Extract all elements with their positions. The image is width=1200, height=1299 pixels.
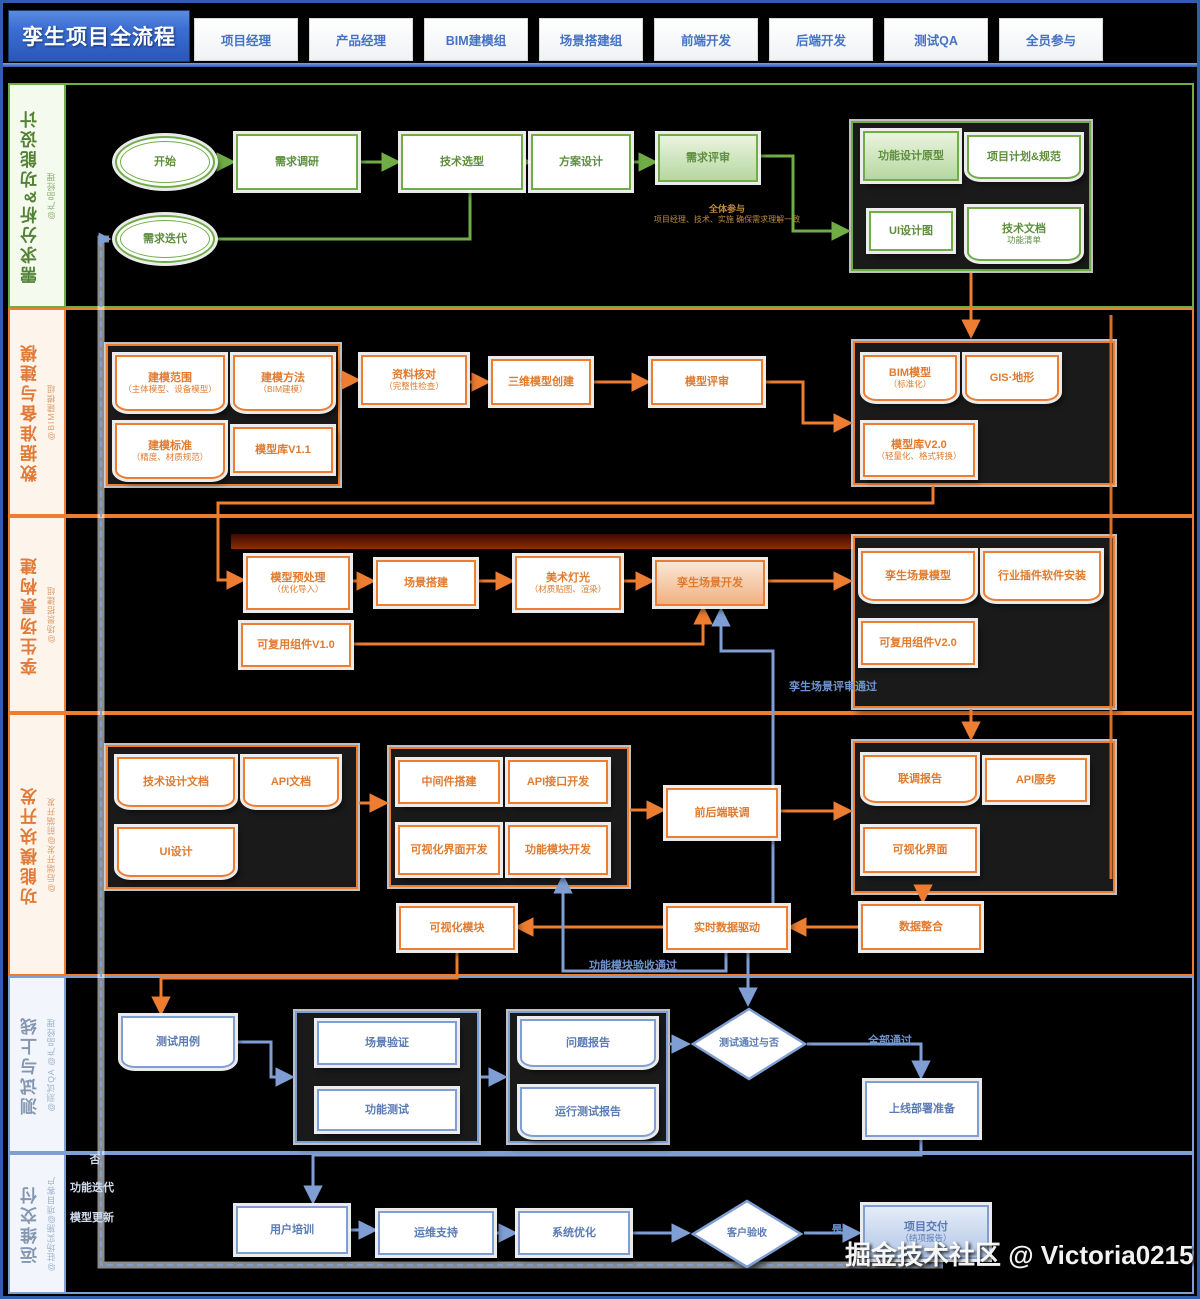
func-proto-node: 功能设计原型 <box>863 131 959 181</box>
lbl-no-label: 否 <box>87 1151 103 1169</box>
func-test-text: 功能测试 <box>365 1104 409 1117</box>
lbl-scene-pass-text: 孪生场景评审通过 <box>789 681 877 694</box>
joint-debug-node: 前后端联调 <box>666 788 778 838</box>
lbl-yes-text: 是 <box>832 1224 843 1237</box>
model-create-text: 三维模型创建 <box>508 376 574 389</box>
run-report-node: 运行测试报告 <box>520 1087 656 1137</box>
data-merge-node: 数据整合 <box>861 904 981 950</box>
comp-v20-node: 可复用组件V2.0 <box>861 621 975 665</box>
plan-spec-node: 项目计划&规范 <box>967 135 1081 179</box>
req-research-node: 需求调研 <box>236 134 358 190</box>
user-training-node: 用户培训 <box>236 1206 348 1254</box>
ops-support-node: 运维支持 <box>378 1211 494 1255</box>
lane-scene-build-label: 孪生场景构建 @场景搭建组 <box>10 518 66 711</box>
gis-text: GIS·地形 <box>990 372 1035 385</box>
tech-doc-subtext: 功能清单 <box>1007 236 1041 246</box>
lbl-model-update-text: 模型更新 <box>70 1212 114 1225</box>
scene-build-node: 场景搭建 <box>376 560 476 606</box>
role-tab-frontend: 前端开发 <box>654 18 758 61</box>
plan-design-text: 方案设计 <box>559 156 603 169</box>
tech-design-node: 技术设计文档 <box>117 757 235 807</box>
middleware-text: 中间件搭建 <box>422 776 477 789</box>
gis-node: GIS·地形 <box>965 355 1059 401</box>
model-review-node: 模型评审 <box>651 359 763 405</box>
debug-report-node: 联调报告 <box>863 755 977 803</box>
api-doc-text: API文档 <box>271 776 311 789</box>
lane-title: 孪生场景构建 <box>18 555 43 675</box>
model-review-text: 模型评审 <box>685 376 729 389</box>
scope-node: 建模范围（主体模型、设备模型） <box>115 355 225 411</box>
plugin-text: 行业插件软件安装 <box>998 570 1086 583</box>
watermark: 掘金技术社区 @ Victoria0215 <box>845 1235 1194 1272</box>
twin-dev-text: 孪生场景开发 <box>677 577 743 590</box>
lane-title: 运维交付 <box>18 1184 43 1264</box>
middleware-node: 中间件搭建 <box>398 760 500 804</box>
lbl-all-pass-text: 全部通过 <box>868 1035 912 1048</box>
lib-v20-text: 模型库V2.0 <box>891 439 947 452</box>
standard-text: 建模标准 <box>148 440 192 453</box>
method-subtext: （BIM建模） <box>258 385 307 395</box>
art-light-node: 美术灯光（材质贴图、渲染） <box>515 556 621 610</box>
lbl-all-pass-label: 全部通过 <box>855 1033 925 1049</box>
twin-dev-node: 孪生场景开发 <box>655 560 765 606</box>
art-light-subtext: （材质贴图、渲染） <box>530 585 607 595</box>
standard-subtext: （精度、材质规范） <box>132 453 209 463</box>
lbl-yes-label: 是 <box>829 1221 845 1239</box>
sys-optimize-node: 系统优化 <box>518 1211 630 1255</box>
header-divider <box>3 63 1197 67</box>
role-tab-scene-team: 场景搭建组 <box>539 18 643 61</box>
lib-v20-node: 模型库V2.0（轻量化、格式转换） <box>863 423 975 477</box>
bim-model-subtext: （标准化） <box>889 380 932 390</box>
role-tab-project-manager: 项目经理 <box>194 18 298 61</box>
api-doc-node: API文档 <box>243 757 339 807</box>
run-report-text: 运行测试报告 <box>555 1106 621 1119</box>
deploy-prep-text: 上线部署准备 <box>889 1103 955 1116</box>
lane-title: 数据准备与建模 <box>18 342 43 482</box>
test-case-node: 测试用例 <box>121 1016 235 1068</box>
twin-project-flowchart: 孪生项目全流程 项目经理 产品经理 BIM建模组 场景搭建组 前端开发 后端开发… <box>0 0 1200 1299</box>
accept-text: 客户验收 <box>727 1228 767 1240</box>
issue-report-node: 问题报告 <box>520 1019 656 1067</box>
review-note-subtext: 项目经理、技术、实施 确保需求理解一致 <box>654 215 800 224</box>
test-case-text: 测试用例 <box>156 1036 200 1049</box>
lbl-no-text: 否 <box>90 1154 101 1167</box>
role-tab-qa: 测试QA <box>884 18 988 61</box>
review-note-node: 全体参与项目经理、技术、实施 确保需求理解一致 <box>651 189 803 239</box>
lane-test-launch-label: 测试与上线 @测试QA @产品经理 <box>10 978 66 1151</box>
lbl-func-iter-text: 功能迭代 <box>70 1182 114 1195</box>
art-light-text: 美术灯光 <box>546 572 590 585</box>
tech-select-text: 技术选型 <box>440 156 484 169</box>
sys-optimize-text: 系统优化 <box>552 1227 596 1240</box>
lib-v20-subtext: （轻量化、格式转换） <box>876 452 961 462</box>
role-tab-product-manager: 产品经理 <box>309 18 413 61</box>
preprocess-subtext: （优化导入） <box>272 585 323 595</box>
viz-ui-text: 可视化界面 <box>893 844 948 857</box>
scene-verify-node: 场景验证 <box>317 1021 457 1065</box>
test-pass-text: 测试通过与否 <box>719 1038 779 1050</box>
lane-module-dev-label: 功能模块开发 @后端开发@前端开发 <box>10 715 66 974</box>
tech-doc-text: 技术文档 <box>1002 223 1046 236</box>
lane-title: 测试与上线 <box>18 1015 43 1115</box>
data-merge-text: 数据整合 <box>899 921 943 934</box>
func-dev-node: 功能模块开发 <box>508 825 608 875</box>
req-review-node: 需求评审 <box>658 134 758 182</box>
twin-model-node: 孪生场景模型 <box>861 551 975 601</box>
api-svc-node: API服务 <box>985 758 1087 802</box>
start-text: 开始 <box>154 156 176 169</box>
api-dev-node: API接口开发 <box>508 760 608 804</box>
issue-report-text: 问题报告 <box>566 1037 610 1050</box>
data-check-node: 资料核对（完整性检查） <box>361 355 467 405</box>
lib-v11-node: 模型库V1.1 <box>233 427 333 473</box>
user-training-text: 用户培训 <box>270 1224 314 1237</box>
ops-support-text: 运维支持 <box>414 1227 458 1240</box>
role-tab-backend: 后端开发 <box>769 18 873 61</box>
tech-doc-node: 技术文档功能清单 <box>967 207 1081 261</box>
comp-v20-text: 可复用组件V2.0 <box>879 637 957 650</box>
plan-design-node: 方案设计 <box>531 134 631 190</box>
lane-title: 功能模块开发 <box>18 785 43 905</box>
page-title: 孪生项目全流程 <box>8 10 190 62</box>
lbl-scene-pass-label: 孪生场景评审通过 <box>778 679 888 695</box>
func-dev-text: 功能模块开发 <box>525 844 591 857</box>
func-test-node: 功能测试 <box>317 1089 457 1131</box>
ui-doc-node: UI设计 <box>117 827 235 877</box>
preprocess-node: 模型预处理（优化导入） <box>246 556 350 610</box>
lib-v11-text: 模型库V1.1 <box>255 444 311 457</box>
lane-owner: @后端开发@前端开发 <box>45 797 57 892</box>
preprocess-text: 模型预处理 <box>271 572 326 585</box>
twin-model-text: 孪生场景模型 <box>885 570 951 583</box>
accept-node: 客户验收 <box>691 1199 803 1269</box>
lane-ops-delivery-label: 运维交付 @驻场实施@项目客户 <box>10 1155 66 1292</box>
lane-owner: @驻场实施@项目客户 <box>45 1176 57 1271</box>
test-pass-node: 测试通过与否 <box>691 1007 807 1081</box>
lane-owner: @测试QA @产品经理 <box>45 1018 57 1111</box>
start-node: 开始 <box>115 136 215 188</box>
api-dev-text: API接口开发 <box>527 776 589 789</box>
lane-title: 需求分析&功能设计 <box>18 108 43 283</box>
delivery-text: 项目交付 <box>904 1221 948 1234</box>
ui-design-doc-text: UI设计图 <box>889 225 933 238</box>
lane-owner: @产品经理 <box>45 172 57 220</box>
method-node: 建模方法（BIM建模） <box>233 355 333 411</box>
review-note-text: 全体参与 <box>709 204 745 215</box>
viz-module-node: 可视化模块 <box>399 906 515 950</box>
scope-text: 建模范围 <box>148 372 192 385</box>
lane-owner: @场景搭建组 <box>45 586 57 643</box>
data-drive-node: 实时数据驱动 <box>666 906 788 950</box>
viz-dev-text: 可视化界面开发 <box>411 844 488 857</box>
comp-v10-node: 可复用组件V1.0 <box>241 623 351 667</box>
scope-subtext: （主体模型、设备模型） <box>123 385 217 395</box>
req-iterate-text: 需求迭代 <box>143 233 187 246</box>
joint-debug-text: 前后端联调 <box>695 807 750 820</box>
deploy-prep-node: 上线部署准备 <box>865 1081 979 1137</box>
lbl-func-pass-text: 功能模块验收通过 <box>589 960 677 973</box>
lbl-model-update-label: 模型更新 <box>65 1211 119 1225</box>
debug-report-text: 联调报告 <box>898 773 942 786</box>
ui-design-doc-node: UI设计图 <box>869 211 953 251</box>
req-iterate-node: 需求迭代 <box>115 215 215 263</box>
role-tab-bim-team: BIM建模组 <box>424 18 528 61</box>
data-drive-text: 实时数据驱动 <box>694 922 760 935</box>
req-review-text: 需求评审 <box>686 152 730 165</box>
plan-spec-text: 项目计划&规范 <box>987 151 1061 164</box>
bim-model-node: BIM模型（标准化） <box>863 355 957 401</box>
method-text: 建模方法 <box>261 372 305 385</box>
standard-node: 建模标准（精度、材质规范） <box>115 423 225 479</box>
model-create-node: 三维模型创建 <box>491 359 591 405</box>
tech-select-node: 技术选型 <box>401 134 523 190</box>
lane-data-modeling-label: 数据准备与建模 @BIM建模组 <box>10 310 66 514</box>
plugin-node: 行业插件软件安装 <box>983 551 1101 601</box>
data-check-subtext: （完整性检查） <box>384 382 444 392</box>
bim-model-text: BIM模型 <box>889 367 931 380</box>
highlight-bar <box>231 534 855 549</box>
req-research-text: 需求调研 <box>275 156 319 169</box>
comp-v10-text: 可复用组件V1.0 <box>257 639 335 652</box>
role-tab-everyone: 全员参与 <box>999 18 1103 61</box>
data-check-text: 资料核对 <box>392 369 436 382</box>
viz-module-text: 可视化模块 <box>430 922 485 935</box>
scene-verify-text: 场景验证 <box>365 1037 409 1050</box>
api-svc-text: API服务 <box>1016 774 1056 787</box>
scene-build-text: 场景搭建 <box>404 577 448 590</box>
viz-ui-node: 可视化界面 <box>863 827 977 873</box>
ui-doc-text: UI设计 <box>160 846 193 859</box>
tech-design-text: 技术设计文档 <box>143 776 209 789</box>
func-proto-text: 功能设计原型 <box>878 150 944 163</box>
lane-requirement-label: 需求分析&功能设计 @产品经理 <box>10 85 66 306</box>
lbl-func-pass-label: 功能模块验收通过 <box>563 958 703 974</box>
viz-dev-node: 可视化界面开发 <box>398 825 500 875</box>
lane-owner: @BIM建模组 <box>45 384 57 440</box>
lbl-func-iter-label: 功能迭代 <box>65 1181 119 1195</box>
